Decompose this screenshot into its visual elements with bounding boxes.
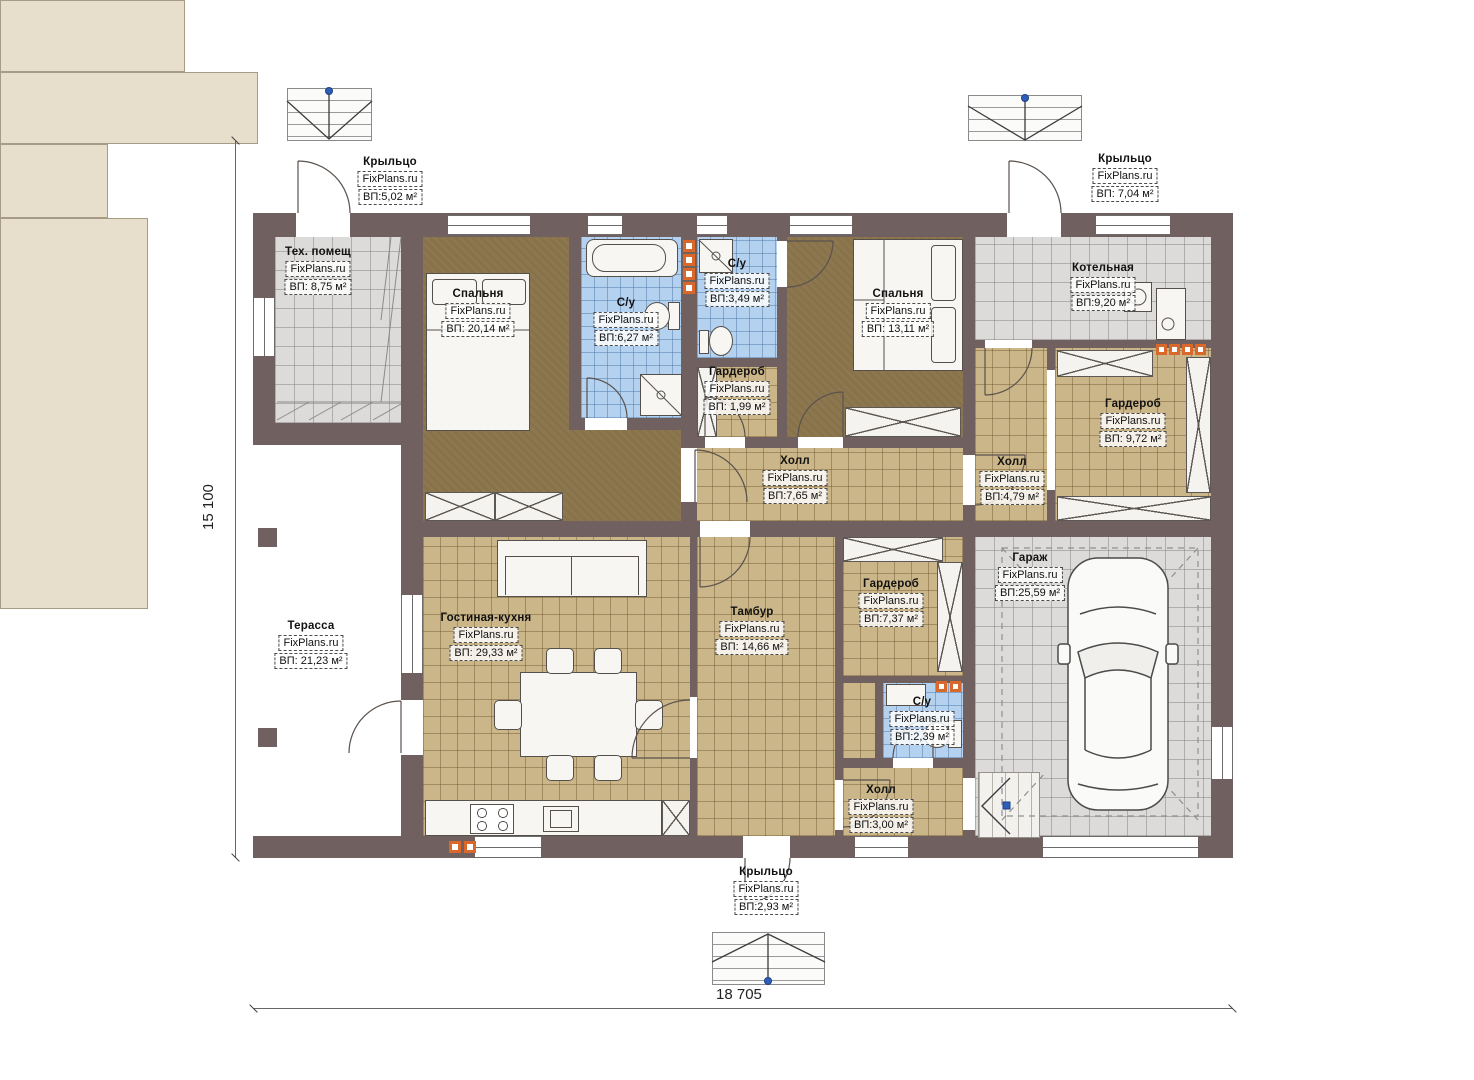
room-label-porch-top-right: Крыльцо FixPlans.ru ВП: 7,04 м² (1091, 153, 1158, 202)
room-area: ВП: 13,11 м² (862, 321, 934, 337)
room-name: Спальня (441, 288, 514, 301)
floor-plan: 15 100 18 705 (0, 0, 1474, 1080)
room-name: Холл (848, 784, 913, 797)
room-area: ВП:7,65 м² (763, 488, 827, 504)
room-label-hall-right: Холл FixPlans.ru ВП:4,79 м² (979, 456, 1044, 505)
room-label-terrace: Терасса FixPlans.ru ВП: 21,23 м² (274, 620, 347, 669)
room-name: Гараж (995, 552, 1065, 565)
room-area: ВП: 9,72 м² (1099, 431, 1166, 447)
room-area: ВП:2,93 м² (734, 899, 798, 915)
room-area: ВП: 21,23 м² (274, 653, 347, 669)
watermark: FixPlans.ru (762, 470, 827, 486)
watermark: FixPlans.ru (704, 381, 769, 397)
room-area: ВП:6,27 м² (594, 330, 658, 346)
room-name: С/у (889, 696, 954, 709)
room-name: Гостиная-кухня (441, 612, 532, 625)
watermark: FixPlans.ru (848, 799, 913, 815)
room-label-wardrobe3: Гардероб FixPlans.ru ВП:7,37 м² (858, 578, 923, 627)
room-label-boiler: Котельная FixPlans.ru ВП:9,20 м² (1070, 262, 1135, 311)
room-name: Холл (979, 456, 1044, 469)
watermark: FixPlans.ru (357, 171, 422, 187)
room-name: Котельная (1070, 262, 1135, 275)
room-label-bath2: С/у FixPlans.ru ВП:3,49 м² (704, 258, 769, 307)
room-name: Гардероб (703, 366, 770, 379)
watermark: FixPlans.ru (445, 303, 510, 319)
watermark: FixPlans.ru (979, 471, 1044, 487)
room-area: ВП: 29,33 м² (449, 645, 522, 661)
room-name: Спальня (862, 288, 934, 301)
room-label-living: Гостиная-кухня FixPlans.ru ВП: 29,33 м² (441, 612, 532, 661)
room-area: ВП:2,39 м² (890, 729, 954, 745)
room-area: ВП:7,37 м² (859, 611, 923, 627)
room-label-porch-top-left: Крыльцо FixPlans.ru ВП:5,02 м² (357, 156, 422, 205)
room-label-tech: Тех. помещ FixPlans.ru ВП: 8,75 м² (284, 246, 351, 295)
room-name: Тех. помещ (284, 246, 351, 259)
room-area: ВП: 8,75 м² (284, 279, 351, 295)
room-label-bath1: С/у FixPlans.ru ВП:6,27 м² (593, 297, 658, 346)
room-label-hall-bottom: Холл FixPlans.ru ВП:3,00 м² (848, 784, 913, 833)
survey-point-icon (326, 88, 1029, 985)
watermark: FixPlans.ru (997, 567, 1062, 583)
width-dimension-label: 18 705 (716, 986, 762, 1003)
room-label-bath3: С/у FixPlans.ru ВП:2,39 м² (889, 696, 954, 745)
room-name: Холл (762, 455, 827, 468)
watermark: FixPlans.ru (593, 312, 658, 328)
room-name: С/у (593, 297, 658, 310)
watermark: FixPlans.ru (858, 593, 923, 609)
watermark: FixPlans.ru (889, 711, 954, 727)
room-label-garage: Гараж FixPlans.ru ВП:25,59 м² (995, 552, 1065, 601)
room-area: ВП:3,49 м² (705, 291, 769, 307)
room-area: ВП:4,79 м² (980, 489, 1044, 505)
room-name: Крыльцо (1091, 153, 1158, 166)
watermark: FixPlans.ru (1092, 168, 1157, 184)
watermark: FixPlans.ru (704, 273, 769, 289)
room-area: ВП: 1,99 м² (703, 399, 770, 415)
room-area: ВП: 7,04 м² (1091, 186, 1158, 202)
room-label-wardrobe2: Гардероб FixPlans.ru ВП: 9,72 м² (1099, 398, 1166, 447)
watermark: FixPlans.ru (453, 627, 518, 643)
room-label-bedroom2: Спальня FixPlans.ru ВП: 13,11 м² (862, 288, 934, 337)
room-label-tambour: Тамбур FixPlans.ru ВП: 14,66 м² (715, 606, 788, 655)
height-dimension-label: 15 100 (200, 484, 217, 530)
room-area: ВП:5,02 м² (358, 189, 422, 205)
car (1058, 558, 1178, 810)
room-area: ВП:25,59 м² (995, 585, 1065, 601)
room-name: Тамбур (715, 606, 788, 619)
watermark: FixPlans.ru (733, 881, 798, 897)
door-arcs (298, 161, 1061, 903)
watermark: FixPlans.ru (278, 635, 343, 651)
plan-linework (0, 0, 1474, 1080)
room-label-bedroom1: Спальня FixPlans.ru ВП: 20,14 м² (441, 288, 514, 337)
watermark: FixPlans.ru (719, 621, 784, 637)
room-name: С/у (704, 258, 769, 271)
room-area: ВП: 20,14 м² (441, 321, 514, 337)
room-area: ВП: 14,66 м² (715, 639, 788, 655)
watermark: FixPlans.ru (1070, 277, 1135, 293)
room-label-hall-center: Холл FixPlans.ru ВП:7,65 м² (762, 455, 827, 504)
room-label-wardrobe1: Гардероб FixPlans.ru ВП: 1,99 м² (703, 366, 770, 415)
room-name: Гардероб (858, 578, 923, 591)
watermark: FixPlans.ru (285, 261, 350, 277)
room-area: ВП:9,20 м² (1071, 295, 1135, 311)
watermark: FixPlans.ru (865, 303, 930, 319)
room-name: Терасса (274, 620, 347, 633)
room-label-porch-bottom: Крыльцо FixPlans.ru ВП:2,93 м² (733, 866, 798, 915)
room-name: Гардероб (1099, 398, 1166, 411)
room-area: ВП:3,00 м² (849, 817, 913, 833)
watermark: FixPlans.ru (1100, 413, 1165, 429)
canopy-roof-lines (287, 88, 1082, 984)
room-name: Крыльцо (357, 156, 422, 169)
room-name: Крыльцо (733, 866, 798, 879)
